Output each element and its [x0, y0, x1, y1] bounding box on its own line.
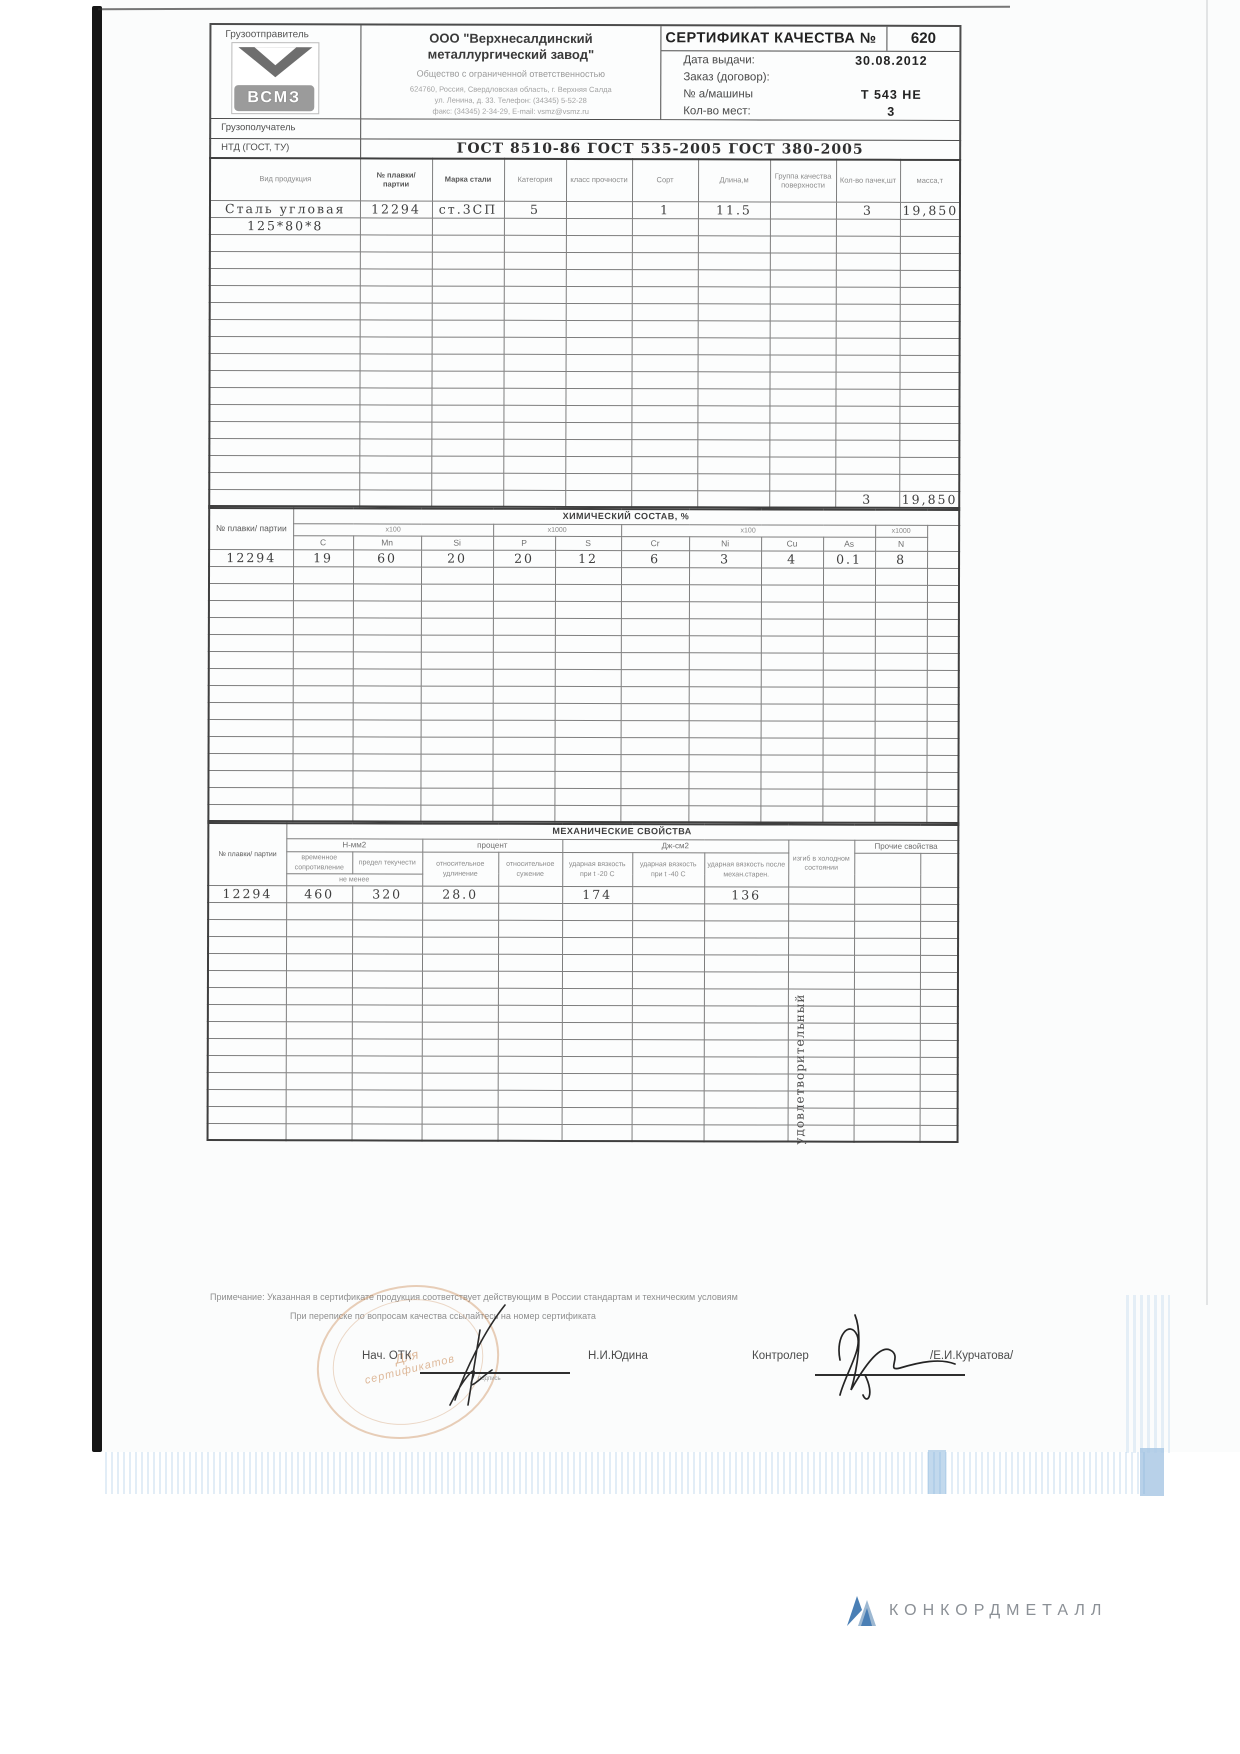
table-cell: [421, 618, 493, 635]
company-name-line1: ООО "Верхнесалдинский: [429, 31, 592, 46]
heat-col-header: № плавки/ партии: [209, 508, 293, 550]
table-cell: [210, 302, 360, 319]
table-cell: [875, 670, 927, 687]
table-cell: [209, 583, 293, 600]
table-cell: [422, 954, 498, 971]
table-row: [209, 438, 959, 457]
table-cell: [431, 388, 503, 405]
table-cell: 12: [555, 550, 621, 567]
table-cell: [503, 456, 565, 473]
table-cell: [293, 720, 353, 737]
table-cell: [498, 1056, 562, 1073]
table-cell: [352, 788, 420, 805]
table-cell: [352, 1039, 422, 1056]
consignee-label: Грузополучатель: [211, 119, 361, 138]
table-cell: [689, 602, 761, 619]
table-cell: 60: [353, 550, 421, 567]
table-cell: [854, 955, 920, 972]
table-cell: 19,850: [900, 202, 960, 219]
table-cell: [920, 955, 958, 972]
table-cell: 136: [704, 887, 788, 904]
table-cell: [432, 269, 504, 286]
table-cell: [621, 618, 689, 635]
table-cell: [854, 1057, 920, 1074]
table-cell: 12294: [208, 885, 286, 902]
table-cell: [698, 286, 770, 303]
table-cell: [899, 423, 959, 440]
table-cell: [422, 1039, 498, 1056]
table-cell: [208, 804, 292, 821]
table-cell: 20: [493, 550, 555, 567]
table-cell: [562, 971, 632, 988]
table-cell: [704, 921, 788, 938]
table-cell: [286, 987, 352, 1004]
table-cell: [286, 1055, 352, 1072]
table-cell: [493, 737, 555, 754]
table-cell: [208, 770, 292, 787]
table-cell: [900, 287, 960, 304]
table-cell: [498, 971, 562, 988]
table-cell: [632, 1107, 704, 1124]
table-cell: [835, 406, 899, 423]
table-cell: [493, 635, 555, 652]
table-cell: [422, 920, 498, 937]
element-header: Ni: [689, 537, 761, 551]
table-cell: [555, 567, 621, 584]
table-cell: [621, 754, 689, 771]
table-cell: [498, 1107, 562, 1124]
table-cell: [562, 920, 632, 937]
table-cell: [823, 568, 875, 585]
not-less-header: не менее: [286, 873, 422, 885]
table-cell: [498, 1073, 562, 1090]
multiplier-header: х1000: [875, 525, 927, 537]
table-row: [209, 685, 959, 704]
table-cell: 4: [761, 551, 823, 568]
table-cell: [420, 805, 492, 822]
certificate-title: СЕРТИФИКАТ КАЧЕСТВА №: [661, 26, 886, 51]
table-cell: [565, 439, 631, 456]
table-cell: [566, 218, 632, 235]
table-cell: [689, 619, 761, 636]
table-cell: [352, 1073, 422, 1090]
table-cell: [498, 954, 562, 971]
table-cell: [698, 252, 770, 269]
table-cell: [498, 1039, 562, 1056]
table-cell: [504, 235, 566, 252]
table-cell: [761, 568, 823, 585]
table-cell: [431, 405, 503, 422]
sub-header: ударная вязкость при t -20 С: [562, 853, 632, 886]
table-row: [208, 770, 958, 789]
table-cell: 320: [352, 886, 422, 903]
table-cell: [854, 1074, 920, 1091]
col-header: Категория: [504, 159, 566, 201]
table-cell: [926, 772, 958, 789]
table-cell: [431, 473, 503, 490]
table-cell: [769, 490, 835, 507]
element-header: Cr: [621, 536, 689, 550]
table-cell: [854, 1023, 920, 1040]
table-cell: [503, 439, 565, 456]
table-cell: [293, 737, 353, 754]
table-cell: 19: [293, 550, 353, 567]
table-cell: [788, 887, 854, 904]
table-cell: [352, 1022, 422, 1039]
table-cell: [920, 1074, 958, 1091]
table-cell: [822, 806, 874, 823]
table-cell: [210, 268, 360, 285]
table-cell: [854, 1040, 920, 1057]
mechanics-title: МЕХАНИЧЕСКИЕ СВОЙСТВА: [286, 824, 958, 841]
table-cell: [352, 1107, 422, 1124]
table-cell: [621, 703, 689, 720]
table-cell: 5: [504, 201, 566, 218]
table-cell: 125*80*8: [210, 217, 360, 234]
table-cell: [353, 618, 421, 635]
table-cell: [689, 704, 761, 721]
table-row: 1229446032028.0174136: [208, 885, 958, 904]
table-cell: [875, 687, 927, 704]
table-cell: [352, 937, 422, 954]
table-cell: [293, 754, 353, 771]
table-cell: [286, 1038, 352, 1055]
table-cell: [562, 1073, 632, 1090]
table-row: [208, 902, 958, 921]
table-cell: [631, 456, 697, 473]
certificate-number: 620: [886, 27, 959, 51]
table-cell: [210, 285, 360, 302]
table-cell: [621, 601, 689, 618]
bend-col-header: изгиб в холодном состоянии: [788, 840, 854, 887]
table-cell: 3: [689, 551, 761, 568]
col-header: Кол-во пачек,шт: [836, 160, 900, 202]
table-cell: [359, 455, 431, 472]
table-cell: [352, 903, 422, 920]
table-cell: 6: [621, 550, 689, 567]
table-cell: [504, 371, 566, 388]
table-cell: [788, 904, 854, 921]
table-cell: [286, 953, 352, 970]
table-cell: [286, 1021, 352, 1038]
table-cell: [761, 738, 823, 755]
table-cell: [293, 635, 353, 652]
table-cell: [698, 269, 770, 286]
table-cell: [209, 404, 359, 421]
table-cell: [498, 1005, 562, 1022]
table-cell: [503, 422, 565, 439]
table-cell: [698, 337, 770, 354]
table-cell: [498, 1022, 562, 1039]
table-cell: [688, 772, 760, 789]
table-cell: [360, 370, 432, 387]
table-cell: [360, 234, 432, 251]
table-cell: [632, 218, 698, 235]
ntd-row: НТД (ГОСТ, ТУ) ГОСТ 8510-86 ГОСТ 535-200…: [209, 138, 961, 159]
table-cell: [498, 920, 562, 937]
mechanics-section: № плавки/ партии МЕХАНИЧЕСКИЕ СВОЙСТВА Н…: [207, 822, 960, 1143]
table-cell: [353, 669, 421, 686]
other-props-sub: [854, 854, 920, 887]
table-row: [209, 583, 959, 602]
table-cell: [761, 721, 823, 738]
table-cell: [293, 669, 353, 686]
table-cell: [770, 269, 836, 286]
table-cell: [360, 302, 432, 319]
table-row: [209, 668, 959, 687]
table-cell: [293, 652, 353, 669]
table-cell: [900, 304, 960, 321]
table-cell: [432, 252, 504, 269]
table-cell: [555, 584, 621, 601]
table-cell: [875, 738, 927, 755]
table-cell: [874, 789, 926, 806]
note-line1: Примечание: Указанная в сертификате прод…: [210, 1292, 970, 1302]
table-cell: [503, 473, 565, 490]
table-cell: [823, 636, 875, 653]
table-cell: [352, 988, 422, 1005]
table-cell: [704, 938, 788, 955]
table-cell: [689, 755, 761, 772]
table-cell: [920, 989, 958, 1006]
table-cell: [899, 474, 959, 491]
table-row: [208, 804, 958, 823]
table-cell: [927, 738, 959, 755]
company-address-line2: ул. Ленина, д. 33. Телефон: (34345) 5-52…: [435, 95, 587, 104]
field-label: Кол-во мест:: [683, 105, 823, 117]
table-cell: 3: [835, 491, 899, 508]
table-cell: [621, 584, 689, 601]
table-cell: [352, 971, 422, 988]
table-cell: [769, 405, 835, 422]
table-cell: [562, 1124, 632, 1141]
table-cell: [359, 489, 431, 506]
table-cell: [360, 251, 432, 268]
table-cell: [422, 988, 498, 1005]
table-cell: [631, 439, 697, 456]
table-cell: [360, 285, 432, 302]
table-cell: [208, 902, 286, 919]
table-cell: [761, 704, 823, 721]
table-cell: [760, 789, 822, 806]
table-cell: [208, 1004, 286, 1021]
table-cell: [209, 489, 359, 506]
table-cell: [632, 1022, 704, 1039]
scanned-certificate-page: Грузоотправитель ВСМЗ ООО "Верхнесалдинс…: [0, 0, 1240, 1754]
table-cell: [565, 422, 631, 439]
table-cell: [554, 788, 620, 805]
table-cell: [504, 252, 566, 269]
table-row: 125*80*8: [210, 217, 960, 236]
other-props-header: Прочие свойства: [854, 840, 958, 854]
table-cell: [353, 720, 421, 737]
table-cell: [210, 319, 360, 336]
table-cell: [209, 617, 293, 634]
table-cell: [900, 338, 960, 355]
table-cell: [555, 737, 621, 754]
table-cell: [632, 1005, 704, 1022]
table-cell: [926, 789, 958, 806]
table-cell: [209, 651, 293, 668]
table-cell: [353, 567, 421, 584]
table-cell: [697, 422, 769, 439]
table-row: [209, 421, 959, 440]
table-row: [210, 268, 960, 287]
table-cell: [562, 1022, 632, 1039]
table-cell: [210, 336, 360, 353]
table-cell: [492, 805, 554, 822]
table-cell: [698, 354, 770, 371]
table-cell: [697, 405, 769, 422]
table-cell: [632, 1039, 704, 1056]
table-cell: [769, 473, 835, 490]
table-cell: [210, 234, 360, 251]
table-cell: [352, 1056, 422, 1073]
table-cell: [822, 789, 874, 806]
table-cell: [631, 388, 697, 405]
field-row-places: Кол-во мест: 3: [661, 102, 959, 120]
table-cell: [492, 771, 554, 788]
table-cell: [422, 1056, 498, 1073]
table-cell: [360, 336, 432, 353]
table-cell: [432, 235, 504, 252]
table-cell: [562, 954, 632, 971]
table-cell: [292, 771, 352, 788]
heat-col-header: № плавки/ партии: [208, 823, 286, 885]
table-cell: [353, 737, 421, 754]
table-row: 1229419602020126340.18: [209, 549, 959, 568]
table-cell: [209, 719, 293, 736]
table-cell: [920, 1125, 958, 1142]
table-cell: [900, 236, 960, 253]
table-cell: Сталь угловая: [210, 200, 360, 217]
table-cell: [875, 619, 927, 636]
table-cell: [770, 337, 836, 354]
table-cell: [761, 653, 823, 670]
table-cell: [920, 887, 958, 904]
table-cell: [566, 371, 632, 388]
table-cell: [770, 320, 836, 337]
table-row: [210, 234, 960, 253]
table-cell: [836, 219, 900, 236]
table-cell: [761, 585, 823, 602]
table-cell: [698, 371, 770, 388]
field-label: Дата выдачи:: [683, 54, 823, 66]
table-cell: [421, 737, 493, 754]
sub-header: ударная вязкость после механ.старен.: [704, 853, 788, 887]
table-cell: [927, 653, 959, 670]
table-cell: [688, 789, 760, 806]
table-cell: [926, 806, 958, 823]
table-cell: [498, 988, 562, 1005]
table-cell: [293, 601, 353, 618]
sub-header: относительное удлинение: [422, 852, 498, 885]
table-cell: [770, 286, 836, 303]
table-cell: [566, 320, 632, 337]
table-row: [209, 600, 959, 619]
consignee-value: [361, 119, 959, 140]
table-cell: [697, 388, 769, 405]
table-cell: [353, 652, 421, 669]
table-cell: [293, 567, 353, 584]
table-cell: [704, 972, 788, 989]
table-cell: [920, 904, 958, 921]
table-cell: [920, 1057, 958, 1074]
table-cell: [689, 568, 761, 585]
sub-header: предел текучести: [352, 852, 422, 873]
table-cell: [504, 320, 566, 337]
table-cell: [927, 602, 959, 619]
table-cell: [503, 388, 565, 405]
table-cell: [493, 754, 555, 771]
consignor-label: Грузоотправитель: [225, 29, 354, 40]
table-cell: [632, 320, 698, 337]
table-cell: [698, 235, 770, 252]
table-cell: [493, 720, 555, 737]
table-cell: [503, 490, 565, 507]
table-cell: [352, 771, 420, 788]
table-cell: [432, 286, 504, 303]
table-cell: [208, 1038, 286, 1055]
table-cell: [422, 1073, 498, 1090]
table-cell: [927, 755, 959, 772]
table-cell: [770, 201, 836, 218]
element-header: Cu: [761, 537, 823, 551]
element-header: S: [555, 536, 621, 550]
table-cell: [760, 806, 822, 823]
table-cell: [920, 1091, 958, 1108]
table-cell: [761, 636, 823, 653]
table-cell: [504, 354, 566, 371]
table-cell: [632, 1056, 704, 1073]
table-cell: [422, 1005, 498, 1022]
element-header: Mn: [353, 536, 421, 550]
element-header: C: [293, 536, 353, 550]
table-cell: [632, 937, 704, 954]
table-cell: [555, 754, 621, 771]
table-cell: [854, 1125, 920, 1142]
table-cell: [875, 755, 927, 772]
table-row: [210, 285, 960, 304]
table-cell: [422, 1022, 498, 1039]
table-cell: [286, 1089, 352, 1106]
table-cell: [761, 687, 823, 704]
table-cell: [208, 1106, 286, 1123]
table-cell: [209, 472, 359, 489]
field-row-truck: № а/машины Т 543 НЕ: [661, 85, 959, 103]
table-cell: [631, 405, 697, 422]
table-cell: [689, 653, 761, 670]
company-address: 624760, Россия, Свердловская область, г.…: [361, 83, 660, 118]
table-cell: [493, 652, 555, 669]
table-cell: [432, 218, 504, 235]
table-cell: [209, 668, 293, 685]
table-cell: [566, 269, 632, 286]
table-cell: [761, 602, 823, 619]
table-cell: [498, 937, 562, 954]
table-cell: [621, 669, 689, 686]
col-header: Группа качества поверхности: [770, 159, 836, 201]
table-cell: [359, 387, 431, 404]
table-cell: [504, 286, 566, 303]
table-cell: [632, 252, 698, 269]
table-cell: [352, 1090, 422, 1107]
table-cell: [854, 938, 920, 955]
table-cell: [493, 686, 555, 703]
table-cell: [431, 439, 503, 456]
table-cell: [704, 1040, 788, 1057]
company-subtitle: Общество с ограниченной ответственностью: [361, 68, 660, 79]
